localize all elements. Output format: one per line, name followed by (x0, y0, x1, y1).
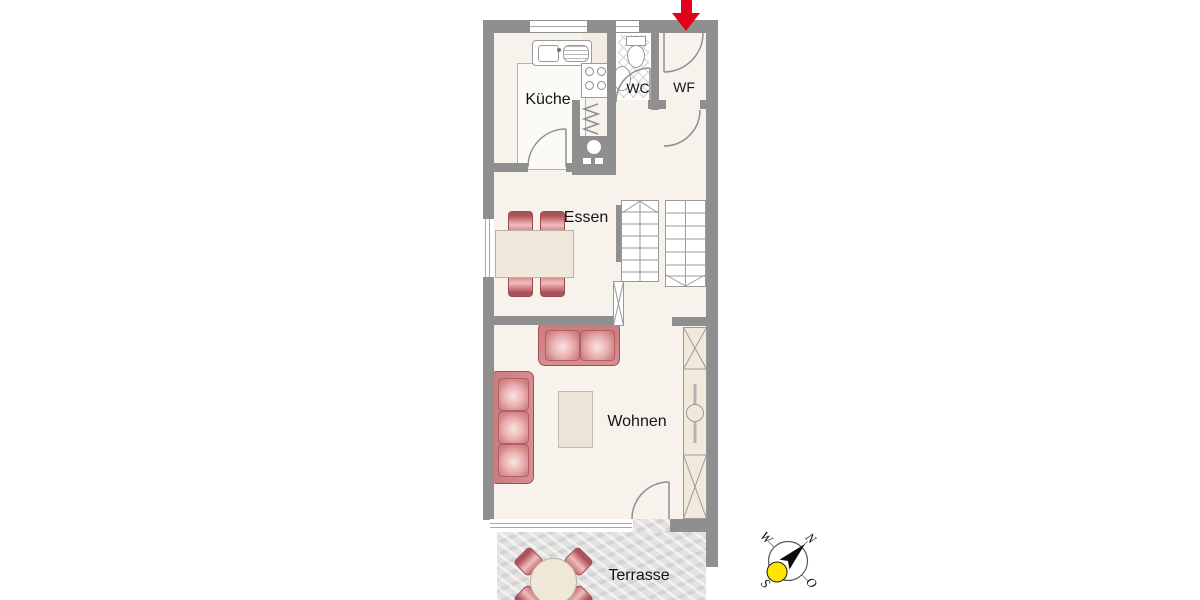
wardrobe (684, 328, 707, 519)
floor-plan: N O S W Küche WC WF Essen Wohnen Terrass… (0, 0, 1200, 600)
compass-east-label: O (803, 574, 821, 592)
stairs-icon (622, 201, 706, 287)
room-label-wohnen: Wohnen (607, 413, 666, 431)
compass-south-label: S (758, 576, 774, 592)
door-arc-terrace (632, 482, 669, 519)
room-label-wf: WF (673, 79, 695, 95)
room-label-essen: Essen (564, 209, 608, 227)
plan-lineart: N O S W (0, 0, 1200, 600)
compass-icon: N O S W (734, 506, 843, 600)
radiator-icon (584, 104, 598, 134)
room-label-kueche: Küche (525, 91, 570, 109)
room-label-wc: WC (626, 80, 649, 96)
door-arc-kitchen (528, 129, 566, 167)
door-arc-entrance (664, 33, 703, 72)
compass-west-label: W (757, 528, 776, 547)
balustrade (614, 282, 624, 326)
entrance-arrow-icon (672, 0, 700, 31)
room-label-terrasse: Terrasse (608, 567, 669, 585)
door-arc-wf-hall (664, 110, 700, 146)
